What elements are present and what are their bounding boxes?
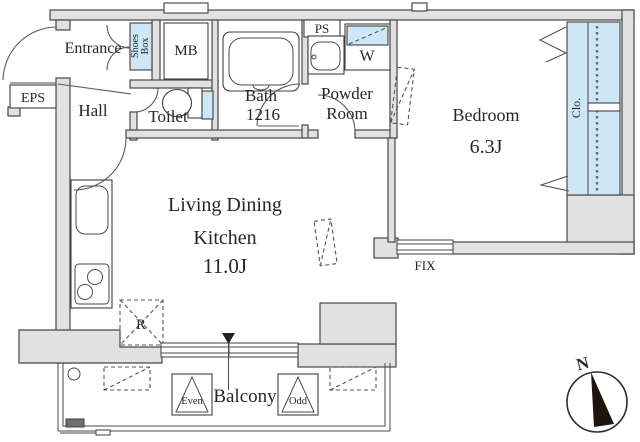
mb-door-tab [164, 3, 208, 13]
ldk-bedroom-wall [388, 138, 395, 242]
floor-plan: EPS MB PS Shoes Box W Clo. [0, 0, 640, 442]
hatch-even-label: Even [181, 396, 203, 407]
wet-area-south-wall-left [126, 130, 318, 138]
top-wall-notch [412, 3, 427, 11]
ldk-label-1: Living Dining [168, 194, 282, 216]
fix-window-label: FIX [415, 258, 437, 273]
bath-powder-wall-lower [302, 125, 308, 138]
washer-pan-top [347, 26, 388, 45]
left-wall-stub [56, 20, 70, 30]
fix-window [397, 240, 453, 254]
top-wall [50, 10, 634, 20]
closet: Clo. [540, 22, 620, 195]
closet-label: Clo. [569, 98, 583, 118]
door-center-marker-icon [222, 333, 235, 344]
entrance-label: Entrance [65, 40, 122, 57]
balcony-label: Balcony [213, 386, 277, 407]
toilet-label: Toilet [148, 107, 188, 126]
entrance-door-arc [3, 27, 57, 80]
powder-room-label-1: Powder [321, 84, 373, 103]
closet-folding-door-icon-top [540, 27, 566, 62]
bedroom-label: Bedroom [453, 105, 520, 125]
ldk-southeast-wall-step [320, 303, 396, 344]
left-wall [56, 78, 70, 363]
closet-folding-door-icon-bottom [541, 176, 569, 191]
evacuation-hatch-even: Even [172, 374, 212, 415]
floor-plan-drawing: EPS MB PS Shoes Box W Clo. [0, 0, 640, 442]
shoes-box-label-2: Box [140, 38, 151, 55]
eps-label: EPS [21, 91, 45, 106]
entrance-mb-wall [152, 20, 160, 88]
ldk-label-2: Kitchen [193, 227, 256, 249]
evacuation-hatch-odd: Odd [278, 374, 318, 415]
toilet-bath-wall [212, 20, 218, 140]
ldk-south-wall-left [19, 330, 162, 363]
ps-label: PS [315, 21, 329, 36]
bedroom-size-label: 6.3J [470, 136, 503, 158]
ldk-size-label: 11.0J [203, 254, 247, 278]
washer-label: W [359, 48, 375, 65]
compass-north-label: N [574, 353, 591, 375]
compass-icon: N [567, 353, 627, 432]
toilet-cistern [202, 91, 213, 119]
balcony: Even Odd Balcony [58, 363, 390, 435]
mb-toilet-band [130, 80, 218, 88]
ac-outdoor-unit-right [330, 367, 376, 390]
balcony-vent-icon [68, 368, 80, 380]
closet-divider [588, 103, 620, 111]
ldk-ac-unit [314, 219, 337, 266]
powder-room-label-2: Room [326, 104, 368, 123]
ac-outdoor-unit-left [104, 367, 150, 390]
refrigerator-space: R [120, 300, 163, 345]
bath-size-label: 1216 [246, 105, 280, 124]
hatch-odd-label: Odd [289, 396, 308, 407]
bedroom-south-wall [452, 242, 634, 254]
mb-label: MB [174, 43, 197, 59]
bath-label: Bath [245, 86, 278, 105]
balcony-drain-outlet [96, 430, 110, 435]
refrigerator-label: R [136, 317, 146, 333]
balcony-drain [66, 419, 84, 427]
ldk-south-wall-right [298, 344, 396, 367]
hall-label: Hall [78, 101, 108, 120]
